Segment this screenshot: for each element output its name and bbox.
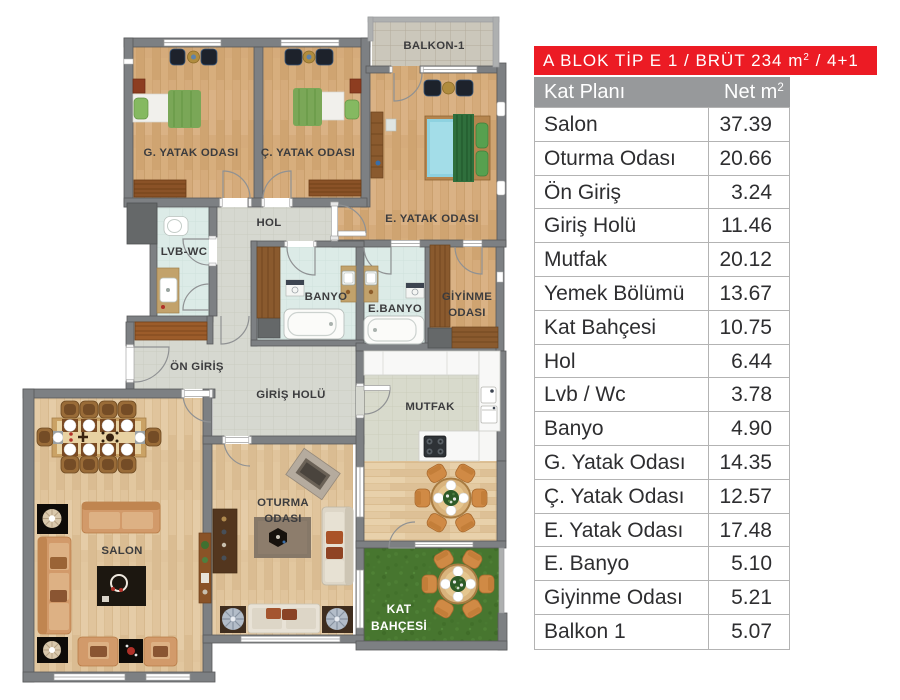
svg-text:HOL: HOL [257,217,282,229]
svg-text:ODASI: ODASI [448,307,486,319]
svg-text:BALKON-1: BALKON-1 [403,40,465,52]
svg-text:Ç. YATAK ODASI: Ç. YATAK ODASI [261,147,355,159]
svg-text:GİYİNME: GİYİNME [442,290,492,303]
svg-text:SALON: SALON [101,545,142,557]
svg-text:BAHÇESİ: BAHÇESİ [371,618,427,633]
svg-text:KAT: KAT [387,602,412,616]
svg-text:E.BANYO: E.BANYO [368,303,422,315]
svg-text:OTURMA: OTURMA [257,497,309,509]
svg-text:ODASI: ODASI [264,513,302,525]
svg-text:MUTFAK: MUTFAK [405,401,455,413]
svg-text:E. YATAK ODASI: E. YATAK ODASI [385,213,479,225]
svg-text:BANYO: BANYO [305,291,348,303]
svg-text:LVB-WC: LVB-WC [161,246,208,258]
svg-text:G. YATAK ODASI: G. YATAK ODASI [144,147,239,159]
svg-text:GİRİŞ HOLÜ: GİRİŞ HOLÜ [256,388,325,401]
svg-text:ÖN GİRİŞ: ÖN GİRİŞ [170,360,224,373]
